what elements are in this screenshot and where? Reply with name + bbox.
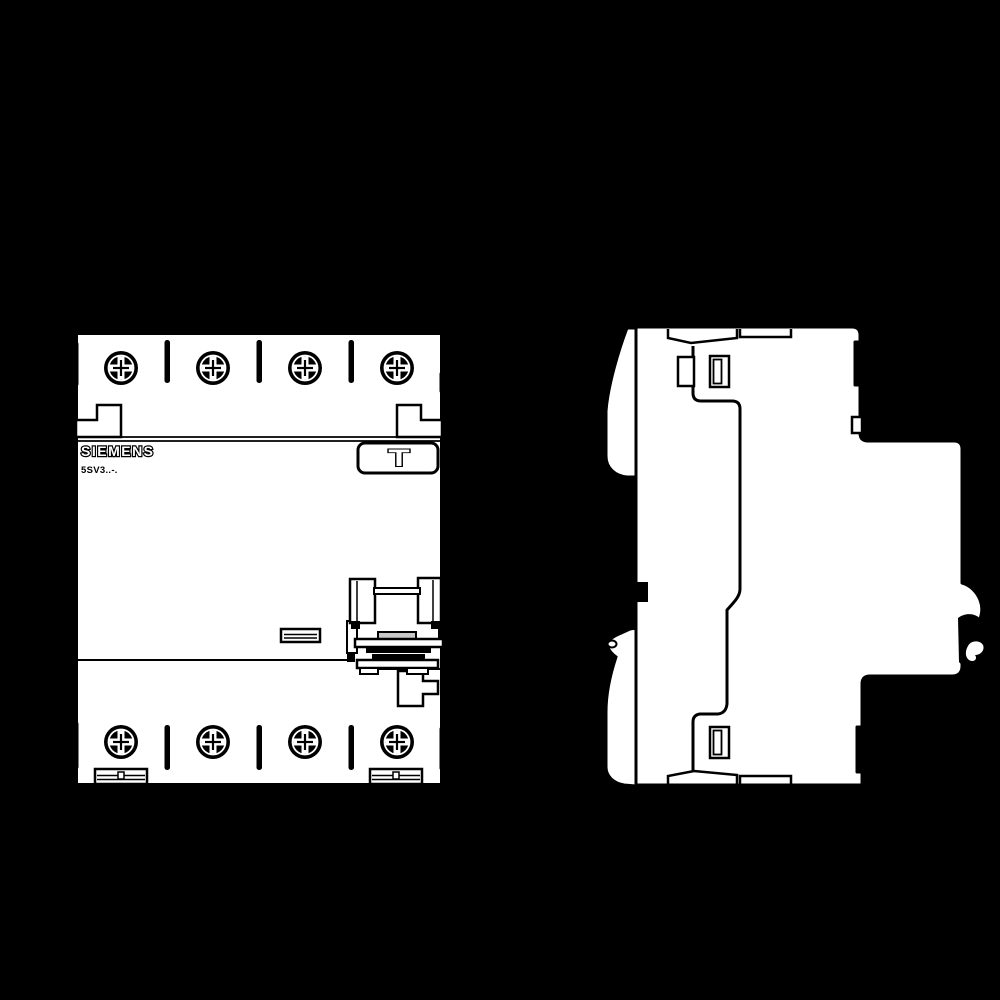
terminal-clamp xyxy=(95,769,147,784)
back-clip-tab xyxy=(852,417,862,433)
terminal-screw-icon xyxy=(288,351,322,385)
side-lever-slot-bottom xyxy=(710,727,729,758)
svg-text:T: T xyxy=(388,445,409,471)
terminal-screw-icon xyxy=(196,351,230,385)
toggle-foot xyxy=(407,668,428,674)
release-nib-hole xyxy=(608,641,617,648)
test-button-symbol: T xyxy=(388,445,409,471)
terminal-screw-icon xyxy=(104,351,138,385)
terminal-slot xyxy=(257,340,263,383)
edge-mark xyxy=(633,582,648,602)
toggle-post-right xyxy=(418,578,441,623)
side-body xyxy=(636,327,982,785)
toggle-base-flange xyxy=(357,660,438,668)
indicator-window xyxy=(281,629,320,642)
din-release-clip xyxy=(958,614,995,670)
technical-drawing-svg: SIEMENS 5SV3..-. T xyxy=(0,0,1000,1000)
terminal-slot xyxy=(349,725,355,770)
terminal-slot xyxy=(165,340,171,383)
terminal-slot xyxy=(349,340,355,383)
toggle-post-left xyxy=(350,579,375,623)
toggle-notch-right xyxy=(431,621,441,629)
toggle-crossbar xyxy=(374,588,420,594)
front-bevel-top xyxy=(606,328,636,477)
terminal-screw-icon xyxy=(380,351,414,385)
toggle-foot xyxy=(360,668,378,674)
toggle-base-layer xyxy=(355,639,443,647)
model-number: 5SV3..-. xyxy=(81,465,118,476)
terminal-screw-icon xyxy=(380,725,414,759)
edge-notch-right-top xyxy=(440,372,445,393)
toggle-base-dark-layer xyxy=(366,648,431,653)
terminal-screw-icon xyxy=(196,725,230,759)
brand-logo: SIEMENS xyxy=(81,443,155,459)
toggle-base-dark-layer xyxy=(372,654,425,659)
front-view: SIEMENS 5SV3..-. T xyxy=(74,333,445,785)
edge-notch-right-bottom xyxy=(440,727,445,770)
front-bevel-bottom xyxy=(606,628,636,786)
toggle-notch-left xyxy=(351,621,360,629)
toggle-accent xyxy=(347,652,355,662)
terminal-slot xyxy=(257,725,263,770)
drawing-canvas: SIEMENS 5SV3..-. T xyxy=(0,0,1000,1000)
side-lever-slot-top xyxy=(710,356,729,387)
side-view xyxy=(606,327,995,786)
edge-notch-left-bottom xyxy=(74,722,79,769)
terminal-screw-icon xyxy=(288,725,322,759)
front-body xyxy=(76,333,442,785)
edge-notch-left-top xyxy=(74,342,79,386)
side-lever xyxy=(678,357,694,386)
terminal-clamp xyxy=(370,769,422,784)
terminal-screw-icon xyxy=(104,725,138,759)
terminal-slot xyxy=(165,725,171,770)
